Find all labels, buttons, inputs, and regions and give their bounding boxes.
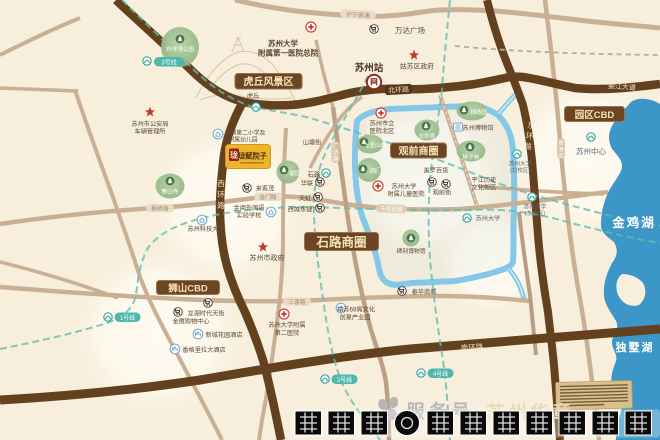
svg-text:拙政园: 拙政园	[471, 108, 488, 116]
svg-text:附属儿童医院: 附属儿童医院	[387, 190, 424, 198]
svg-text:(北校区): (北校区)	[510, 166, 531, 174]
svg-text:金阊外国语: 金阊外国语	[234, 204, 265, 212]
svg-text:苏州大学附属: 苏州大学附属	[268, 321, 305, 329]
svg-text:1号线: 1号线	[120, 314, 135, 322]
svg-text:3号线: 3号线	[161, 58, 176, 66]
svg-text:寒山寺: 寒山寺	[161, 188, 179, 196]
svg-text:万达广场: 万达广场	[395, 25, 425, 35]
svg-text:2号线: 2号线	[337, 376, 352, 384]
svg-text:附属第一医院总院: 附属第一医院总院	[258, 48, 318, 58]
svg-text:珑赋院子: 珑赋院子	[238, 152, 267, 161]
svg-text:苏州博物馆: 苏州博物馆	[463, 124, 494, 132]
svg-text:碑刻博物馆: 碑刻博物馆	[397, 247, 426, 255]
svg-text:香格里拉大酒店: 香格里拉大酒店	[182, 346, 225, 354]
svg-text:园区CBD: 园区CBD	[575, 110, 615, 121]
svg-text:观前商圈: 观前商圈	[399, 145, 439, 158]
svg-text:阊门: 阊门	[370, 167, 382, 175]
svg-text:白洋湾公园: 白洋湾公园	[166, 45, 194, 53]
svg-text:天虹: 天虹	[299, 195, 311, 203]
svg-text:姑苏区政府: 姑苏区政府	[400, 62, 434, 71]
svg-text:文化街区: 文化街区	[472, 184, 497, 192]
svg-text:龙湖时代天街: 龙湖时代天街	[187, 310, 224, 318]
svg-text:苏州市立: 苏州市立	[370, 120, 395, 128]
svg-text:车辆管理所: 车辆管理所	[135, 128, 166, 136]
svg-text:来客茂: 来客茂	[256, 185, 275, 193]
svg-text:苏州大学: 苏州大学	[476, 215, 501, 223]
svg-text:苏州大学: 苏州大学	[392, 183, 417, 191]
svg-text:石路: 石路	[308, 170, 321, 179]
svg-text:苏州市政府: 苏州市政府	[250, 253, 285, 262]
svg-text:星港街: 星港街	[558, 140, 564, 160]
svg-text:石路商圈: 石路商圈	[315, 235, 366, 250]
svg-text:珑: 珑	[230, 150, 238, 160]
svg-text:姑苏69阁文化: 姑苏69阁文化	[337, 306, 375, 314]
svg-text:西城永捷: 西城永捷	[288, 206, 313, 214]
svg-text:虎丘风景区: 虎丘风景区	[244, 75, 294, 88]
svg-text:狮子林: 狮子林	[463, 153, 480, 161]
svg-text:观前街: 观前街	[433, 189, 452, 197]
svg-text:第二医院: 第二医院	[275, 329, 300, 337]
svg-text:金门路: 金门路	[259, 193, 277, 201]
svg-text:枫桥路: 枫桥路	[151, 205, 169, 213]
svg-text:泰华商城: 泰华商城	[412, 288, 437, 296]
svg-text:实验学校: 实验学校	[237, 212, 262, 220]
svg-text:苏州大学: 苏州大学	[268, 38, 298, 48]
svg-text:七里山塘: 七里山塘	[365, 142, 385, 149]
svg-text:金阊第二小学及: 金阊第二小学及	[225, 129, 266, 137]
svg-text:南环路: 南环路	[460, 341, 483, 352]
svg-text:创意产业园: 创意产业园	[340, 314, 371, 322]
svg-text:广济路: 广济路	[333, 142, 339, 164]
svg-text:山塘街: 山塘街	[303, 139, 322, 147]
svg-text:苏州大学: 苏州大学	[509, 160, 532, 168]
svg-text:苏州站: 苏州站	[355, 62, 384, 74]
svg-text:4号线: 4号线	[433, 370, 448, 378]
svg-text:(东校区): (东校区)	[525, 209, 546, 217]
svg-text:三香路: 三香路	[288, 298, 306, 306]
svg-text:虎丘: 虎丘	[247, 92, 259, 100]
svg-text:美罗百货: 美罗百货	[424, 167, 449, 175]
svg-text:苏州市公安局: 苏州市公安局	[131, 120, 168, 128]
svg-text:附属幼儿园: 附属幼儿园	[229, 136, 258, 144]
svg-text:医院北区: 医院北区	[370, 127, 395, 135]
svg-text:玄妙观: 玄妙观	[419, 132, 436, 140]
svg-text:金鸡湖: 金鸡湖	[611, 215, 656, 230]
svg-text:苏州科技大学: 苏州科技大学	[187, 225, 224, 233]
svg-text:留园: 留园	[289, 169, 301, 177]
svg-text:苏州大学: 苏州大学	[524, 203, 547, 211]
svg-text:狮山CBD: 狮山CBD	[167, 283, 208, 295]
svg-text:独墅湖: 独墅湖	[615, 340, 655, 354]
svg-text:西环路: 西环路	[217, 179, 225, 210]
svg-text:平江历史: 平江历史	[472, 176, 497, 184]
svg-text:新城花园酒店: 新城花园酒店	[205, 331, 242, 339]
svg-text:金鹰购物中心: 金鹰购物中心	[172, 318, 209, 326]
svg-text:苏州中心: 苏州中心	[576, 146, 606, 156]
svg-text:华联: 华联	[301, 180, 313, 188]
